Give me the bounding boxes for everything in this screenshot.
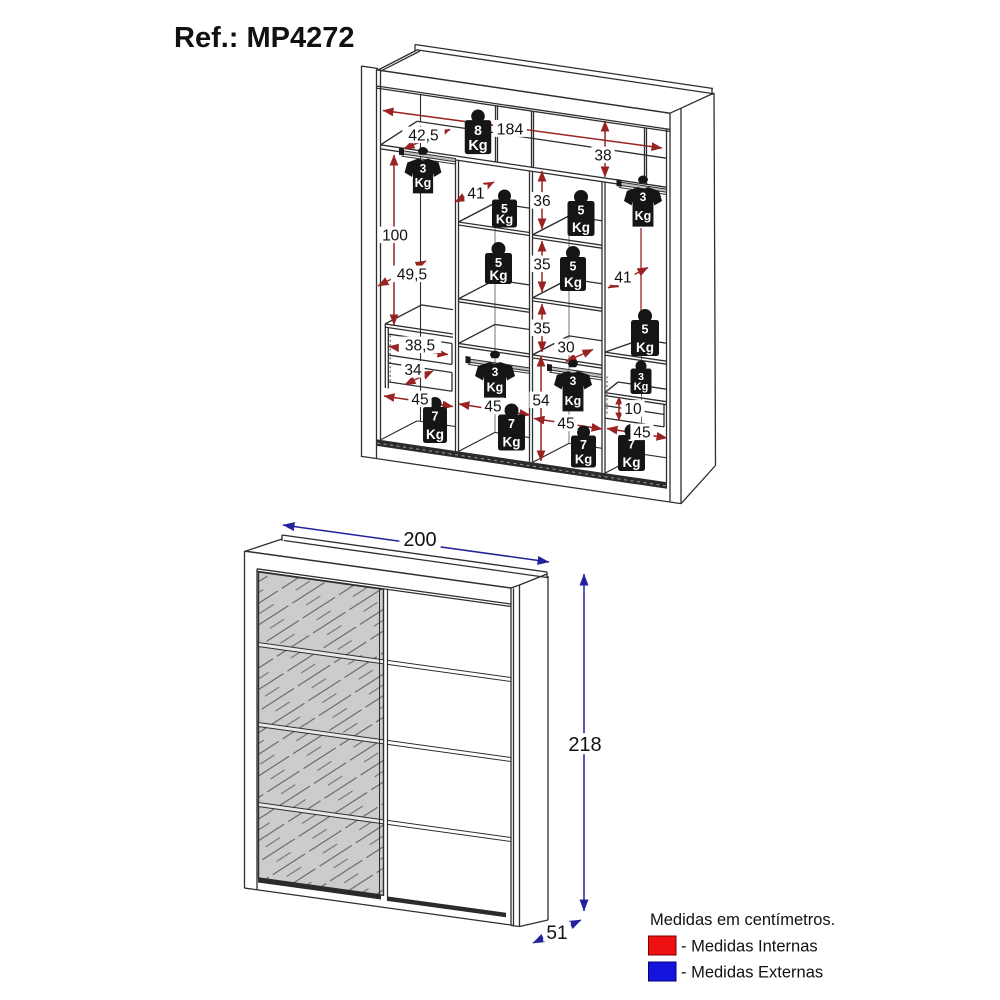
svg-text:41: 41 — [614, 270, 631, 287]
svg-text:5: 5 — [570, 260, 577, 274]
svg-text:- Medidas Externas: - Medidas Externas — [681, 964, 823, 982]
svg-text:Kg: Kg — [623, 455, 641, 470]
svg-text:Kg: Kg — [468, 138, 487, 154]
svg-text:Ref.: MP4272: Ref.: MP4272 — [174, 22, 355, 54]
svg-text:Kg: Kg — [565, 394, 582, 408]
svg-text:42,5: 42,5 — [408, 128, 438, 145]
svg-text:3: 3 — [570, 374, 577, 388]
svg-text:38,5: 38,5 — [405, 338, 435, 355]
svg-text:7: 7 — [580, 438, 587, 452]
svg-text:100: 100 — [382, 228, 408, 245]
svg-text:5: 5 — [642, 323, 649, 337]
svg-text:184: 184 — [497, 121, 524, 138]
svg-text:Kg: Kg — [503, 435, 521, 450]
svg-text:Kg: Kg — [564, 275, 582, 290]
svg-text:35: 35 — [533, 257, 550, 274]
svg-text:- Medidas Internas: - Medidas Internas — [681, 938, 818, 956]
svg-text:38: 38 — [594, 148, 611, 165]
svg-text:3: 3 — [420, 162, 427, 176]
svg-text:Kg: Kg — [426, 427, 444, 442]
svg-text:36: 36 — [533, 193, 550, 210]
svg-text:3: 3 — [492, 365, 499, 379]
svg-text:35: 35 — [533, 321, 550, 338]
svg-text:Kg: Kg — [487, 381, 504, 395]
svg-text:10: 10 — [624, 401, 642, 418]
svg-text:34: 34 — [404, 362, 422, 379]
svg-text:Kg: Kg — [636, 340, 654, 355]
svg-text:41: 41 — [467, 186, 484, 203]
svg-text:51: 51 — [546, 923, 567, 944]
svg-text:Kg: Kg — [490, 268, 508, 283]
svg-text:Kg: Kg — [635, 209, 652, 223]
svg-text:Kg: Kg — [575, 452, 592, 467]
svg-text:Kg: Kg — [572, 220, 590, 235]
svg-text:49,5: 49,5 — [397, 267, 427, 284]
svg-text:218: 218 — [568, 734, 601, 756]
svg-text:8: 8 — [474, 122, 482, 138]
svg-text:54: 54 — [532, 393, 550, 410]
svg-text:45: 45 — [557, 416, 574, 433]
svg-text:Kg: Kg — [415, 176, 432, 190]
svg-text:Kg: Kg — [496, 212, 513, 227]
svg-text:7: 7 — [508, 417, 515, 431]
svg-text:Medidas em centímetros.: Medidas em centímetros. — [650, 911, 835, 929]
svg-text:Kg: Kg — [634, 381, 649, 393]
svg-text:3: 3 — [640, 190, 647, 204]
svg-text:45: 45 — [633, 425, 650, 442]
svg-text:30: 30 — [557, 340, 575, 357]
svg-text:7: 7 — [432, 410, 439, 424]
svg-text:5: 5 — [578, 204, 585, 218]
svg-text:45: 45 — [411, 392, 428, 409]
svg-text:200: 200 — [403, 529, 436, 551]
svg-text:45: 45 — [484, 399, 501, 416]
